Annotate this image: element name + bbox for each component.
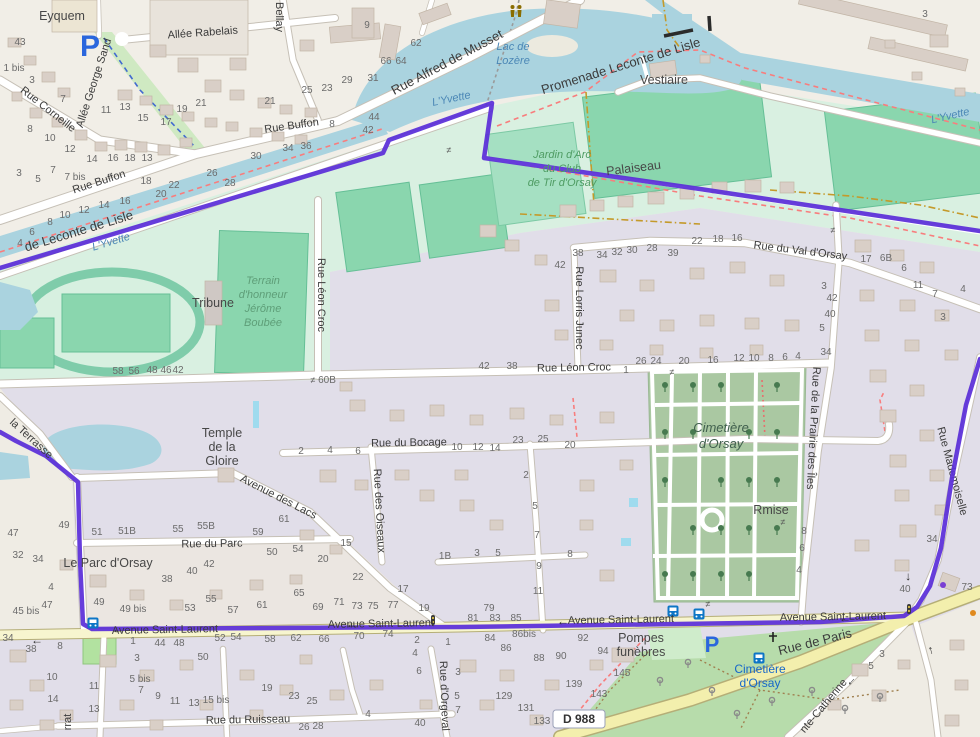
- map-label: Rue Lorris Junec: [573, 266, 585, 350]
- house-number-label: 34: [282, 143, 294, 154]
- house-number-label: 62: [290, 633, 302, 644]
- house-number-label: 7 bis: [64, 172, 85, 183]
- oneway-arrow: ←: [112, 622, 124, 636]
- house-number-label: 38: [506, 361, 518, 372]
- house-number-label: 5: [35, 174, 41, 185]
- house-number-label: 3: [455, 667, 461, 678]
- house-number-label: 75: [367, 601, 379, 612]
- map-label: Rue du Ruisseau: [206, 713, 291, 726]
- house-number-label: 38: [25, 644, 37, 655]
- house-number-label: 3: [29, 75, 35, 86]
- gate-icon: ≠: [447, 145, 452, 155]
- house-number-label: 13: [188, 698, 200, 709]
- house-number-label: 50: [197, 652, 209, 663]
- house-number-label: 18: [712, 234, 724, 245]
- house-number-label: 61: [278, 514, 290, 525]
- map-label: rrat: [62, 714, 74, 731]
- house-number-label: 14: [86, 154, 98, 165]
- house-number-label: 54: [230, 632, 242, 643]
- house-number-label: 14: [98, 200, 110, 211]
- house-number-label: 10: [748, 353, 760, 364]
- house-number-label: 43: [14, 37, 26, 48]
- house-number-label: 32: [12, 550, 24, 561]
- poi-dot: [940, 582, 946, 588]
- map-label: Terrain: [246, 275, 280, 287]
- house-number-label: 5: [454, 691, 460, 702]
- house-number-label: 49: [58, 520, 70, 531]
- house-number-label: 9: [536, 561, 542, 572]
- house-number-label: 19: [261, 683, 273, 694]
- house-number-label: 6: [799, 543, 805, 554]
- house-number-label: 50: [266, 547, 278, 558]
- map-label: Pompes: [618, 631, 664, 645]
- house-number-label: 3: [16, 168, 22, 179]
- house-number-label: 74: [382, 629, 394, 640]
- house-number-label: 131: [518, 703, 535, 714]
- house-number-label: 26: [298, 722, 310, 733]
- house-number-label: 28: [312, 721, 324, 732]
- map-viewport[interactable]: Rue MademoiselleL'Yvette PP EyquemAllée …: [0, 0, 980, 737]
- house-number-label: 1B: [439, 551, 452, 562]
- house-number-label: 6: [901, 263, 907, 274]
- house-number-label: 13: [119, 102, 131, 113]
- map-label: Temple: [202, 426, 242, 440]
- house-number-label: 7: [932, 289, 938, 300]
- house-number-label: 38: [161, 574, 173, 585]
- map-label: Rue du Parc: [181, 537, 243, 550]
- house-number-label: 16: [707, 355, 719, 366]
- map-label: du Club: [543, 163, 581, 175]
- house-number-label: 52: [214, 633, 226, 644]
- house-number-label: 19: [418, 603, 430, 614]
- house-number-label: 30: [626, 245, 638, 256]
- house-number-label: 34: [820, 347, 832, 358]
- map-label: Lac de: [496, 41, 529, 53]
- house-number-label: 48: [146, 365, 158, 376]
- house-number-label: 70: [353, 631, 365, 642]
- house-number-label: 19: [176, 104, 188, 115]
- house-number-label: 44: [368, 112, 380, 123]
- house-number-label: 48: [173, 638, 185, 649]
- house-number-label: 4: [48, 582, 54, 593]
- house-number-label: 8: [801, 526, 807, 537]
- oneway-arrow: ←: [557, 614, 569, 628]
- house-number-label: 71: [333, 597, 345, 608]
- gate-icon: ≠: [781, 517, 786, 527]
- house-number-label: 9: [155, 691, 161, 702]
- house-number-label: 3: [922, 9, 928, 20]
- house-number-label: 3: [474, 548, 480, 559]
- house-number-label: 59: [252, 527, 264, 538]
- house-number-label: 9: [364, 20, 370, 31]
- house-number-label: 8: [768, 353, 774, 364]
- house-number-label: 13: [141, 153, 153, 164]
- house-number-label: 88: [533, 653, 545, 664]
- house-number-label: 20: [564, 440, 576, 451]
- gate-icon: ≠: [311, 375, 316, 385]
- map-label: Rue Léon Croc: [537, 361, 612, 374]
- map-label: funèbres: [617, 645, 666, 659]
- map-label: Avenue Saint-Laurent: [112, 623, 218, 637]
- house-number-label: 40: [186, 566, 198, 577]
- house-number-label: 18: [124, 153, 136, 164]
- house-number-label: 3: [879, 649, 885, 660]
- house-number-label: 47: [41, 600, 53, 611]
- house-number-label: 7: [138, 685, 144, 696]
- oneway-arrow: ←: [839, 611, 851, 625]
- house-number-label: 73: [351, 601, 363, 612]
- house-number-label: 51B: [118, 526, 136, 537]
- house-number-label: 6B: [880, 253, 893, 264]
- house-number-label: 8: [57, 641, 63, 652]
- map-label: Le Parc d'Orsay: [63, 556, 153, 570]
- map-label: d'Orsay: [699, 436, 745, 451]
- house-number-label: 57: [227, 605, 239, 616]
- map-label: d'honneur: [239, 289, 289, 301]
- house-number-label: 7: [534, 530, 540, 541]
- house-number-label: 4: [795, 351, 801, 362]
- house-number-label: 20: [678, 356, 690, 367]
- oneway-arrow: ←: [346, 617, 358, 631]
- house-number-label: 5: [868, 661, 874, 672]
- house-number-label: 17: [860, 254, 872, 265]
- map-label: de la: [208, 440, 235, 454]
- house-number-label: 129: [496, 691, 513, 702]
- map-label: Jardin d'Arc: [532, 149, 591, 161]
- house-number-label: 17: [397, 584, 409, 595]
- house-number-label: 15 bis: [203, 695, 230, 706]
- house-number-label: 16: [731, 233, 743, 244]
- road-ref-text: D 988: [563, 712, 595, 726]
- map-label: Tribune: [192, 296, 234, 310]
- house-number-label: 133: [534, 716, 551, 727]
- house-number-label: 17: [160, 117, 172, 128]
- house-number-label: 13: [88, 704, 100, 715]
- house-number-label: 8: [47, 217, 53, 228]
- house-number-label: 14: [47, 694, 59, 705]
- gate-icon: ≠: [706, 599, 711, 609]
- house-number-label: 24: [650, 356, 662, 367]
- house-number-label: 85: [510, 613, 522, 624]
- gate-icon: ≠: [670, 367, 675, 377]
- house-number-label: 29: [341, 75, 353, 86]
- house-number-label: 3: [821, 281, 827, 292]
- house-number-label: 65: [293, 588, 305, 599]
- house-number-label: 11: [913, 280, 924, 291]
- house-number-label: 81: [467, 613, 479, 624]
- house-number-label: 90: [555, 651, 567, 662]
- map-label: Cimetière: [693, 420, 749, 435]
- house-number-label: 15: [137, 113, 149, 124]
- house-number-label: 21: [195, 98, 207, 109]
- house-number-label: 4: [960, 284, 966, 295]
- oneway-arrow: ←: [899, 571, 913, 583]
- house-number-label: 21: [264, 96, 276, 107]
- gate-icon: ≠: [831, 225, 836, 235]
- map-label: Rue Léon Croc: [315, 258, 327, 332]
- house-number-label: 28: [646, 243, 658, 254]
- house-number-label: 77: [387, 600, 399, 611]
- map-label: d'Orsay: [740, 676, 781, 690]
- house-number-label: 1: [130, 636, 136, 647]
- house-number-label: 5: [532, 501, 538, 512]
- house-number-label: 42: [478, 361, 490, 372]
- house-number-label: 10: [59, 210, 71, 221]
- house-number-label: 73: [961, 582, 973, 593]
- traffic-signals-icon: [907, 604, 911, 614]
- house-number-label: 34: [596, 250, 608, 261]
- house-number-label: 49 bis: [120, 604, 147, 615]
- house-number-label: 14: [489, 443, 501, 454]
- house-number-label: 5: [495, 548, 501, 559]
- map-label: Vestiaire: [640, 73, 688, 87]
- house-number-label: 30: [250, 151, 262, 162]
- house-number-label: 66: [380, 56, 392, 67]
- house-number-label: 55: [172, 524, 184, 535]
- house-number-label: 6: [782, 352, 788, 363]
- house-number-label: 23: [321, 83, 333, 94]
- house-number-label: 40: [824, 309, 836, 320]
- house-number-label: 6: [29, 227, 35, 238]
- house-number-label: 4: [796, 565, 802, 576]
- house-number-label: 11: [170, 696, 181, 707]
- house-number-label: 36: [300, 141, 312, 152]
- house-number-label: 12: [64, 144, 76, 155]
- house-number-label: 2: [523, 470, 529, 481]
- map-canvas[interactable]: Rue MademoiselleL'Yvette PP EyquemAllée …: [0, 0, 980, 737]
- house-number-label: 8: [27, 124, 33, 135]
- house-number-label: 58: [112, 366, 124, 377]
- house-number-label: 83: [489, 613, 501, 624]
- map-label: Rmise: [753, 503, 788, 517]
- house-number-label: 51: [91, 527, 103, 538]
- map-label: Eyquem: [39, 9, 85, 23]
- map-label: Rue d'Orgeval: [437, 661, 451, 731]
- map-label: Lozère: [496, 55, 530, 67]
- house-number-label: 22: [352, 572, 364, 583]
- house-number-label: 20: [155, 189, 167, 200]
- house-number-label: 40: [414, 718, 426, 729]
- bus-stop-icon: [88, 618, 99, 629]
- map-label: Avenue Saint-Laurent: [328, 617, 434, 631]
- house-number-label: 39: [667, 248, 679, 259]
- house-number-label: 1: [445, 637, 451, 648]
- house-number-label: 1: [623, 365, 629, 376]
- house-number-label: 49: [93, 597, 105, 608]
- house-number-label: 10: [451, 442, 463, 453]
- house-number-label: 5 bis: [129, 674, 150, 685]
- house-number-label: 16: [119, 196, 131, 207]
- house-number-label: 16: [107, 153, 119, 164]
- house-number-label: 92: [577, 633, 589, 644]
- house-number-label: 58: [264, 634, 276, 645]
- house-number-label: 55B: [197, 521, 215, 532]
- map-label: Avenue Saint-Laurent: [780, 610, 886, 624]
- house-number-label: 26: [206, 168, 218, 179]
- house-number-label: 15: [340, 538, 352, 549]
- house-number-label: 145: [614, 668, 631, 679]
- poi-dot: [970, 610, 976, 616]
- road-ref-shield: D 988: [553, 710, 605, 728]
- house-number-label: 34: [926, 534, 938, 545]
- house-number-label: 3: [940, 312, 946, 323]
- house-number-label: 5: [819, 323, 825, 334]
- house-number-label: 12: [733, 353, 745, 364]
- house-number-label: 28: [224, 178, 236, 189]
- house-number-label: 55: [205, 594, 217, 605]
- house-number-label: 42: [203, 559, 215, 570]
- house-number-label: 25: [537, 434, 549, 445]
- house-number-label: 8: [567, 549, 573, 560]
- house-number-label: 4: [327, 445, 333, 456]
- bus-stop-icon: [694, 609, 705, 620]
- house-number-label: 84: [484, 633, 496, 644]
- house-number-label: 56: [128, 366, 140, 377]
- house-number-label: 42: [554, 260, 566, 271]
- house-number-label: 2: [414, 635, 420, 646]
- house-number-label: 44: [154, 638, 166, 649]
- house-number-label: 25: [306, 696, 318, 707]
- house-number-label: 86: [500, 643, 512, 654]
- house-number-label: 6: [355, 446, 361, 457]
- house-number-label: 60B: [318, 375, 336, 386]
- house-number-label: 8: [329, 119, 335, 130]
- map-label: Gloire: [205, 454, 238, 468]
- house-number-label: 11: [89, 681, 100, 692]
- map-label: Boubée: [244, 317, 282, 329]
- house-number-label: 31: [367, 73, 379, 84]
- house-number-label: 61: [256, 600, 268, 611]
- house-number-label: 42: [172, 365, 184, 376]
- house-number-label: 46: [160, 365, 172, 376]
- house-number-label: 7: [455, 705, 461, 716]
- map-label: de Tir d'Orsay: [528, 177, 598, 189]
- house-number-label: 4: [412, 648, 418, 659]
- house-number-label: 22: [168, 180, 180, 191]
- house-number-label: 53: [184, 603, 196, 614]
- house-number-label: 69: [312, 602, 324, 613]
- house-number-label: 34: [2, 633, 14, 644]
- house-number-label: 1 bis: [3, 63, 24, 74]
- house-number-label: 10: [46, 672, 58, 683]
- house-number-label: 23: [512, 435, 524, 446]
- house-number-label: 25: [301, 85, 313, 96]
- house-number-label: 47: [7, 528, 19, 539]
- house-number-label: 7: [60, 94, 66, 105]
- parking-icon: P: [705, 632, 720, 657]
- house-number-label: 143: [591, 689, 608, 700]
- house-number-label: 20: [317, 554, 329, 565]
- house-number-label: 4: [17, 238, 23, 249]
- house-number-label: 42: [362, 125, 374, 136]
- house-number-label: 22: [691, 236, 703, 247]
- house-number-label: 86bis: [512, 629, 536, 640]
- house-number-label: 2: [298, 446, 304, 457]
- house-number-label: 32: [611, 247, 623, 258]
- map-label: Bellay: [273, 2, 285, 32]
- house-number-label: 3: [134, 653, 140, 664]
- house-number-label: 23: [288, 691, 300, 702]
- house-number-label: 12: [78, 205, 90, 216]
- house-number-label: 18: [140, 176, 152, 187]
- house-number-label: 40: [899, 584, 911, 595]
- house-number-label: 139: [566, 679, 583, 690]
- house-number-label: 12: [472, 442, 484, 453]
- house-number-label: 26: [635, 356, 647, 367]
- map-label: Jérôme: [244, 303, 282, 315]
- house-number-label: 64: [395, 56, 407, 67]
- house-number-label: 62: [410, 38, 422, 49]
- house-number-label: 66: [318, 634, 330, 645]
- house-number-label: 34: [32, 554, 44, 565]
- house-number-label: 54: [292, 544, 304, 555]
- map-label: Avenue Saint-Laurent: [568, 613, 674, 627]
- house-number-label: 11: [101, 105, 112, 116]
- house-number-label: 7: [50, 165, 56, 176]
- map-label: Rue du Bocage: [371, 436, 447, 449]
- house-number-label: 45 bis: [13, 606, 40, 617]
- map-label: Cimetière: [734, 662, 786, 676]
- house-number-label: 42: [826, 293, 838, 304]
- house-number-label: 4: [365, 709, 371, 720]
- house-number-label: 10: [44, 133, 56, 144]
- house-number-label: 38: [572, 248, 584, 259]
- house-number-label: 11: [533, 586, 544, 597]
- house-number-label: 94: [597, 646, 609, 657]
- house-number-label: 6: [416, 666, 422, 677]
